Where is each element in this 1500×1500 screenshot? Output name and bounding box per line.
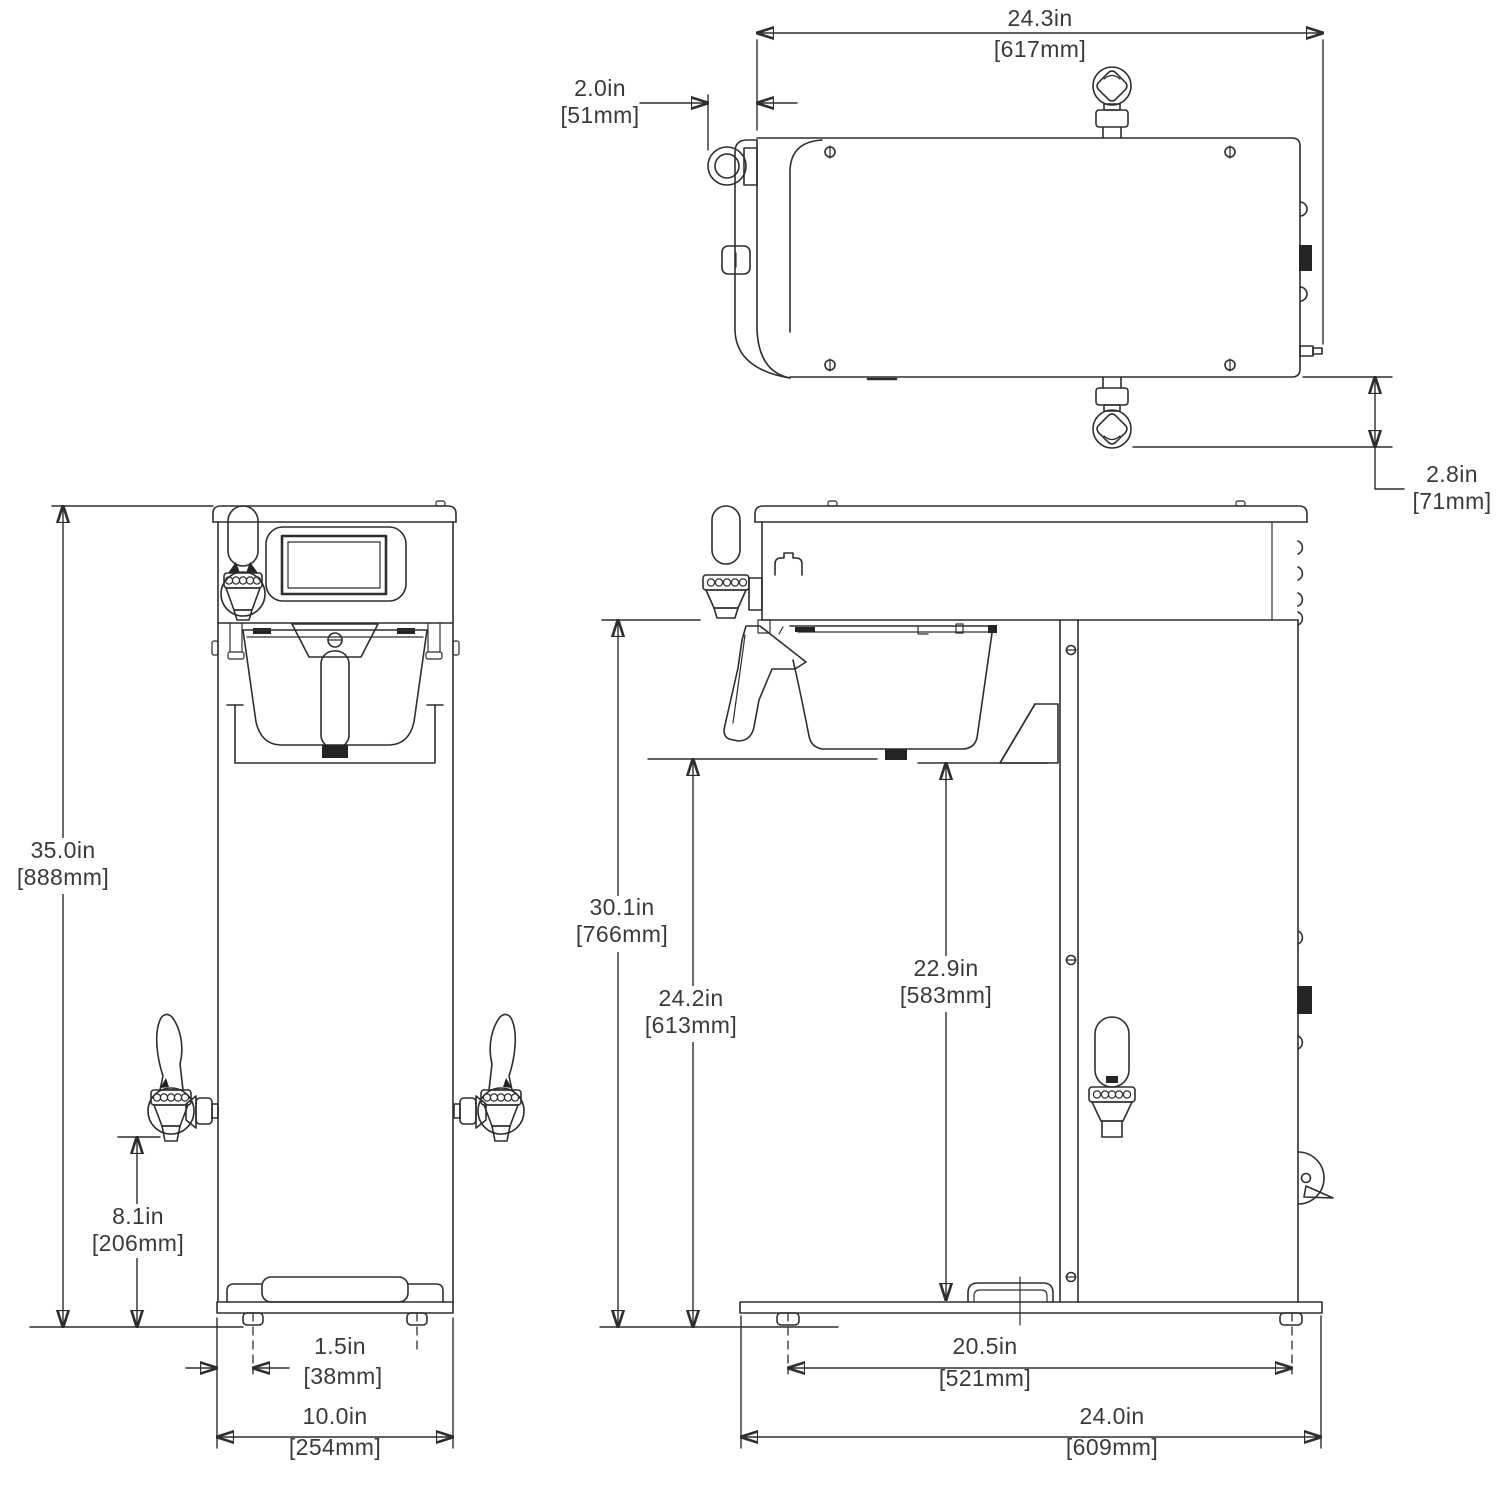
dim-top-depth-mm: [617mm] [994,36,1086,62]
dim-dispense-clearance-mm: [766mm] [576,921,668,947]
dim-base-depth-in: 24.0in [1079,1403,1144,1429]
front-view: 35.0in [888mm] 8.1in [206mm] 1.5in [38mm… [14,501,524,1460]
dim-foot-span-mm: [521mm] [939,1365,1031,1391]
side-head [755,501,1307,633]
body-front-face [790,140,822,332]
dim-handle-clearance-mm: [51mm] [560,102,639,128]
brew-funnel-front[interactable] [227,623,443,763]
front-faucet-knob [708,147,757,185]
dim-dispense-clearance: 30.1in [766mm] [572,620,838,1327]
dim-rear-fitting-offset: 2.8in [71mm] [1133,377,1492,514]
base-handle [968,1283,1053,1302]
dim-faucet-height-in: 8.1in [112,1203,164,1229]
dim-foot-span: 20.5in [521mm] [788,1313,1292,1391]
side-view: 30.1in [766mm] 24.2in [613mm] 22.9in [58… [572,501,1333,1460]
funnel-tip [885,749,907,760]
tea-faucet-side[interactable] [1089,1017,1135,1137]
drip-tray [262,1277,408,1302]
dim-shelf-clearance: 22.9in [583mm] [894,763,1048,1300]
rear-faucet-bottom [1093,377,1131,448]
dim-foot-inset-in: 1.5in [314,1333,366,1359]
dim-overall-height-mm: [888mm] [17,864,109,890]
funnel-tip [322,745,348,758]
tray-shelf-bracket [1000,704,1058,763]
dim-base-width-mm: [254mm] [289,1434,381,1460]
dim-faucet-height-mm: [206mm] [92,1230,184,1256]
hot-water-faucet-side[interactable] [703,506,762,618]
left-faucet[interactable] [148,1014,218,1141]
trunk-column [1020,620,1333,1325]
dim-top-depth: 24.3in [617mm] [757,5,1323,344]
dim-funnel-clearance: 24.2in [613mm] [640,759,877,1327]
hot-water-faucet-front[interactable] [221,506,265,620]
brew-funnel-side[interactable] [724,624,997,760]
right-faucet[interactable] [454,1014,524,1141]
dim-overall-height-in: 35.0in [30,837,95,863]
dim-faucet-height: 8.1in [206mm] [90,1137,186,1327]
lock-tab-icon [775,553,802,575]
brewer-dimension-drawing: 24.3in [617mm] 2.0in [51mm] 2.8in [71mm] [0,0,1500,1500]
dim-foot-inset-mm: [38mm] [303,1363,382,1389]
drain-lever [1304,1186,1333,1198]
screw-icon [825,146,1235,371]
dim-shelf-clearance-in: 22.9in [913,955,978,981]
dim-rear-fitting-offset-in: 2.8in [1426,461,1478,487]
rear-panel-fittings [1299,202,1322,356]
dim-shelf-clearance-mm: [583mm] [900,982,992,1008]
front-head [212,501,459,1302]
base-foot [1280,1313,1302,1325]
dim-foot-span-in: 20.5in [952,1333,1017,1359]
touchscreen-display[interactable] [266,527,406,601]
power-switch-icon [1299,245,1312,271]
hood-edge-inner [757,140,790,378]
hood-clip [722,246,750,274]
dim-foot-inset: 1.5in [38mm] [186,1313,417,1389]
rear-faucet-top [1093,67,1131,138]
side-base [740,1283,1322,1325]
dim-rear-fitting-offset-mm: [71mm] [1412,488,1491,514]
funnel-handle [724,626,806,741]
dim-dispense-clearance-in: 30.1in [589,894,654,920]
top-view-body [735,138,1300,379]
dim-handle-clearance-in: 2.0in [574,75,626,101]
top-view: 24.3in [617mm] 2.0in [51mm] 2.8in [71mm] [560,5,1491,514]
drawing-canvas: 24.3in [617mm] 2.0in [51mm] 2.8in [71mm] [0,0,1500,1500]
dim-funnel-clearance-mm: [613mm] [645,1012,737,1038]
dim-base-width-in: 10.0in [302,1403,367,1429]
dim-top-depth-in: 24.3in [1007,5,1072,31]
dim-base-depth-mm: [609mm] [1066,1434,1158,1460]
power-switch-icon [1297,986,1312,1014]
dim-funnel-clearance-in: 24.2in [658,985,723,1011]
